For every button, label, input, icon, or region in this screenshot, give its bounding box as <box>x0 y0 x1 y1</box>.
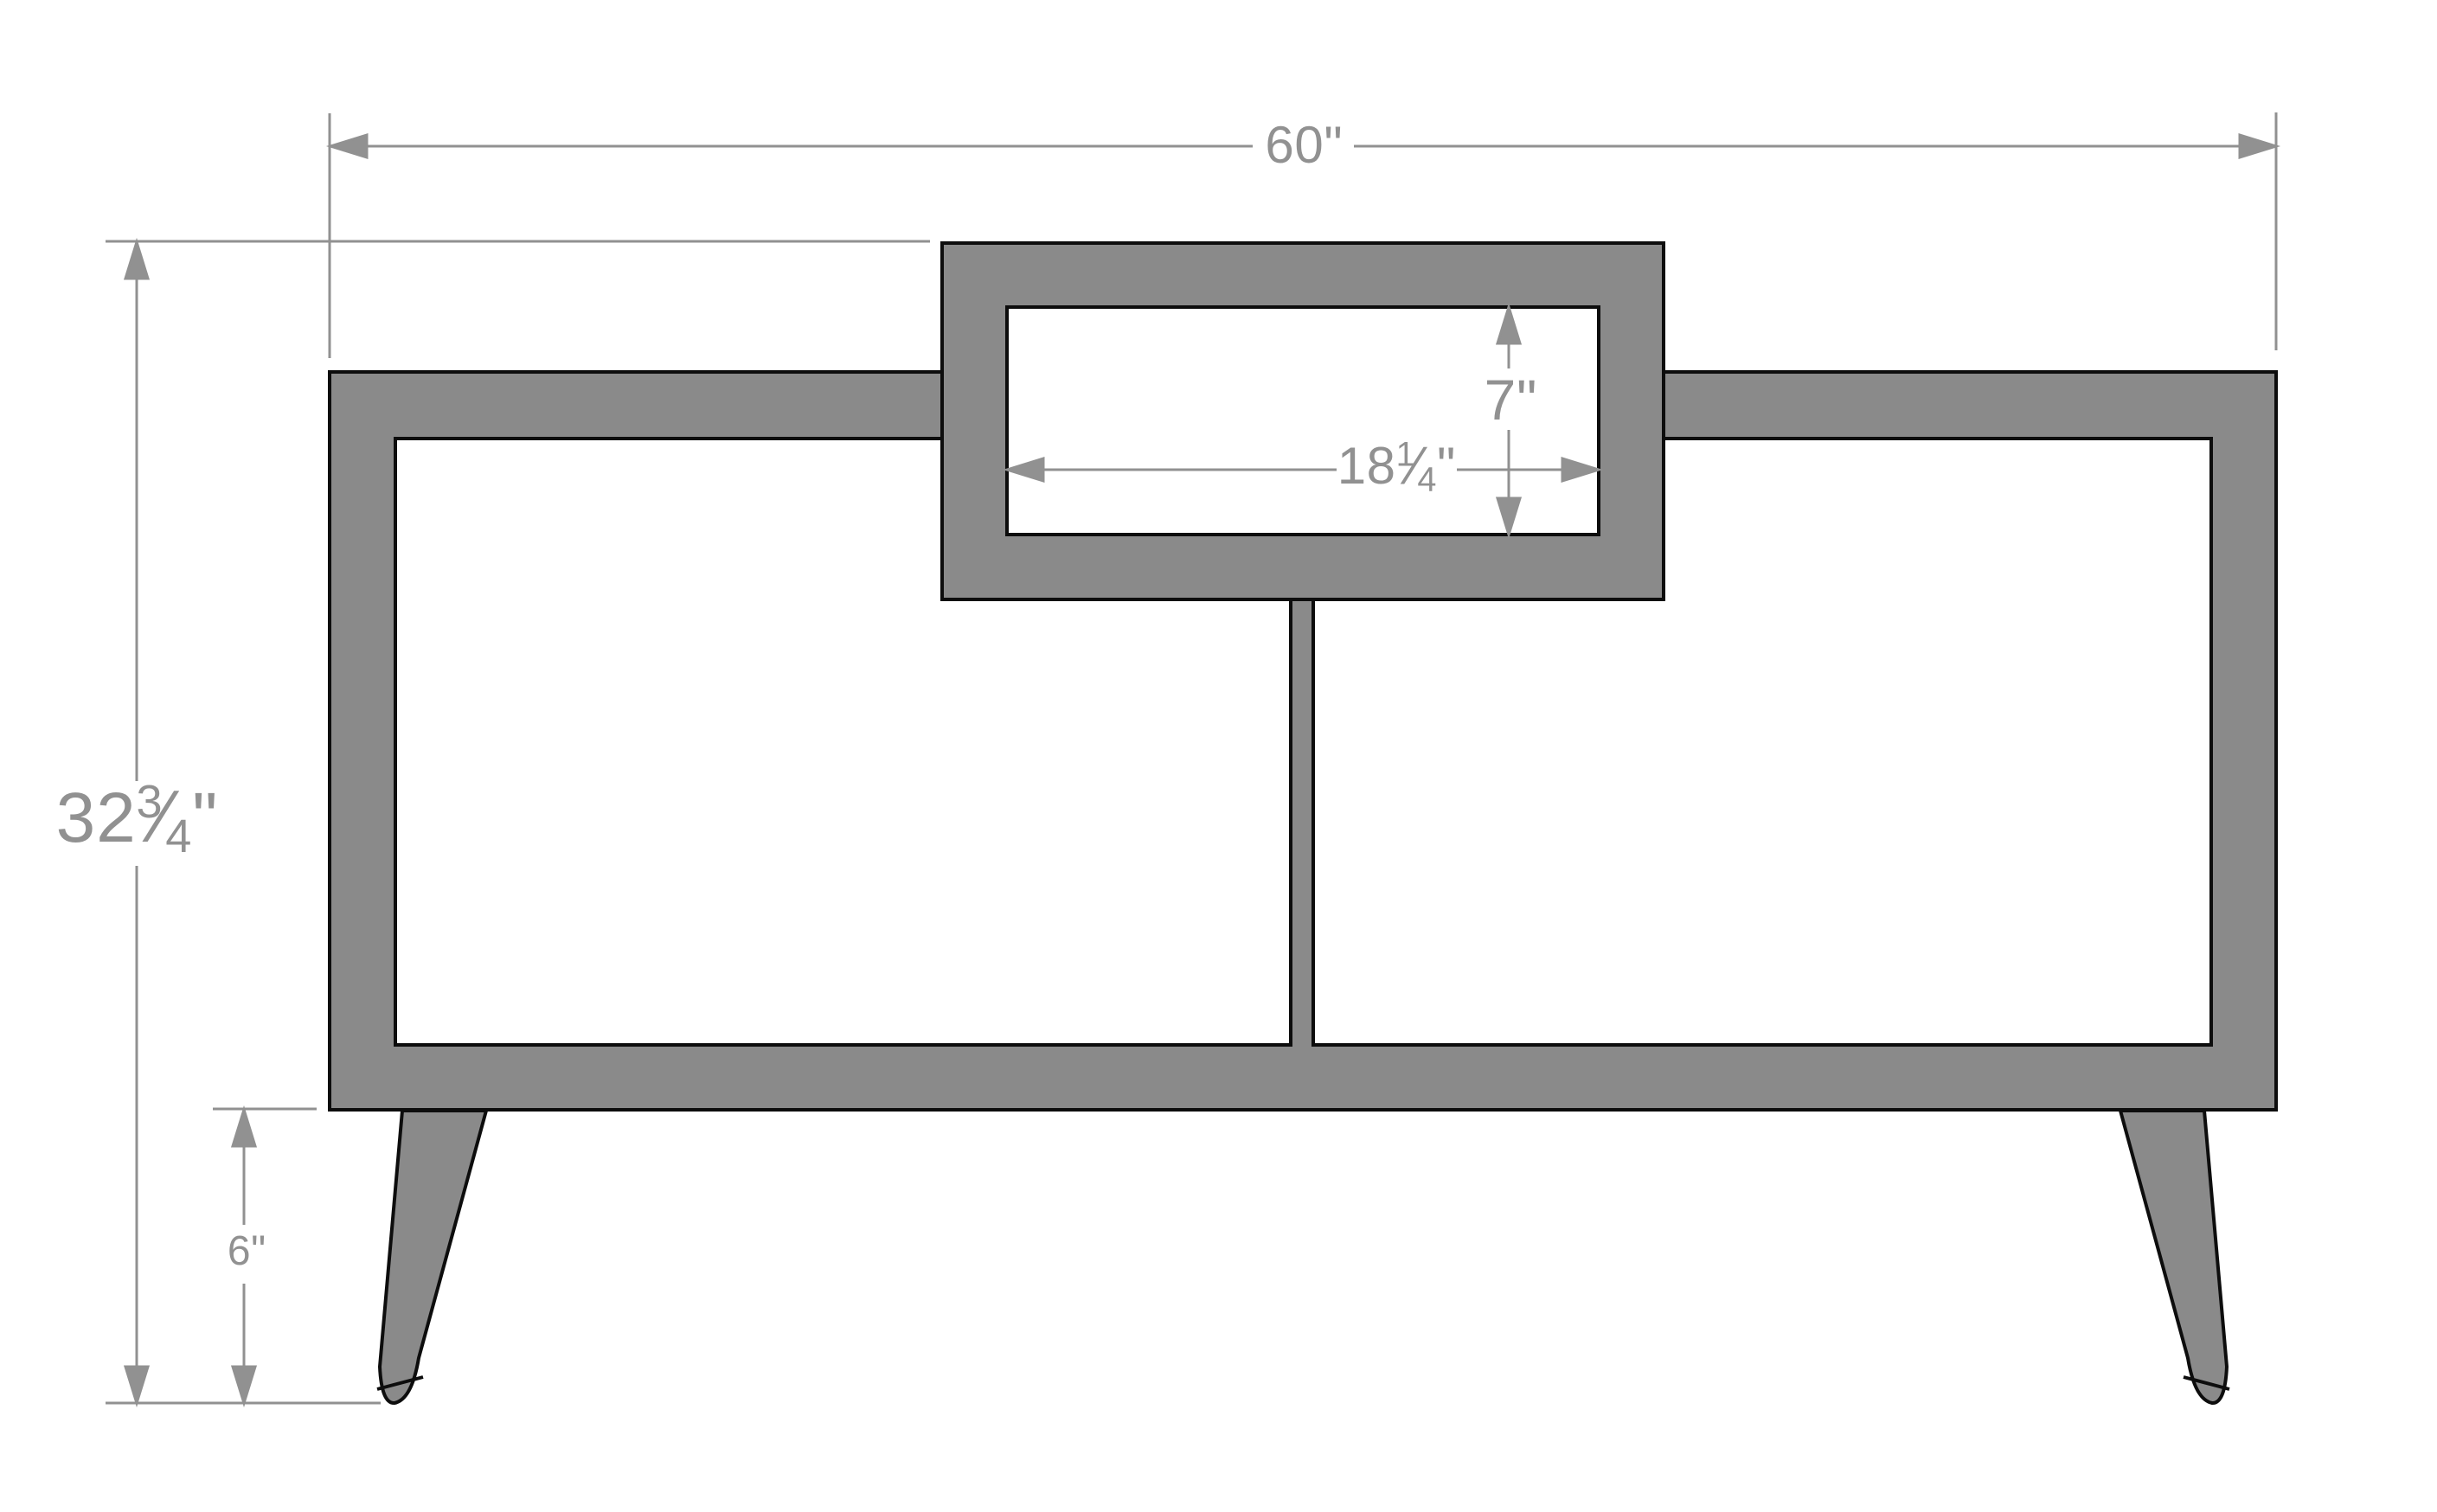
inch-mark: " <box>1437 437 1455 495</box>
arrowhead-left-icon <box>330 135 367 157</box>
overall-height-label: 323⁄4" <box>56 778 218 860</box>
arrowhead-up-icon <box>233 1110 255 1146</box>
cubby-height-value: 7 <box>1485 368 1517 432</box>
inch-mark: " <box>1324 116 1342 174</box>
overall-height-value: 32 <box>56 778 137 857</box>
cubby-width-label: 181⁄4" <box>1337 439 1456 498</box>
arrowhead-down-icon <box>233 1367 255 1403</box>
arrowhead-right-icon <box>2240 135 2276 157</box>
inch-mark: " <box>1517 368 1536 432</box>
leg-height-label: 6" <box>228 1231 266 1272</box>
fraction-denominator: 4 <box>1417 461 1437 499</box>
drawing-canvas: 60" 323⁄4" 181⁄4" 7" 6" <box>0 0 2437 1512</box>
overall-width-value: 60 <box>1265 116 1324 174</box>
furniture-elevation-diagram <box>0 0 2437 1512</box>
left-leg <box>380 1111 486 1403</box>
right-leg <box>2120 1111 2227 1403</box>
overall-width-label: 60" <box>1265 119 1342 171</box>
arrowhead-down-icon <box>125 1367 148 1403</box>
leg-height-value: 6 <box>228 1228 251 1274</box>
inch-mark: " <box>251 1228 266 1274</box>
cabinet <box>330 243 2276 1110</box>
fraction-denominator: 4 <box>165 810 192 862</box>
cubby-height-label: 7" <box>1485 371 1537 428</box>
cubby-width-value: 18 <box>1337 437 1396 495</box>
arrowhead-up-icon <box>125 242 148 279</box>
inch-mark: " <box>192 778 217 857</box>
legs <box>377 1111 2229 1403</box>
